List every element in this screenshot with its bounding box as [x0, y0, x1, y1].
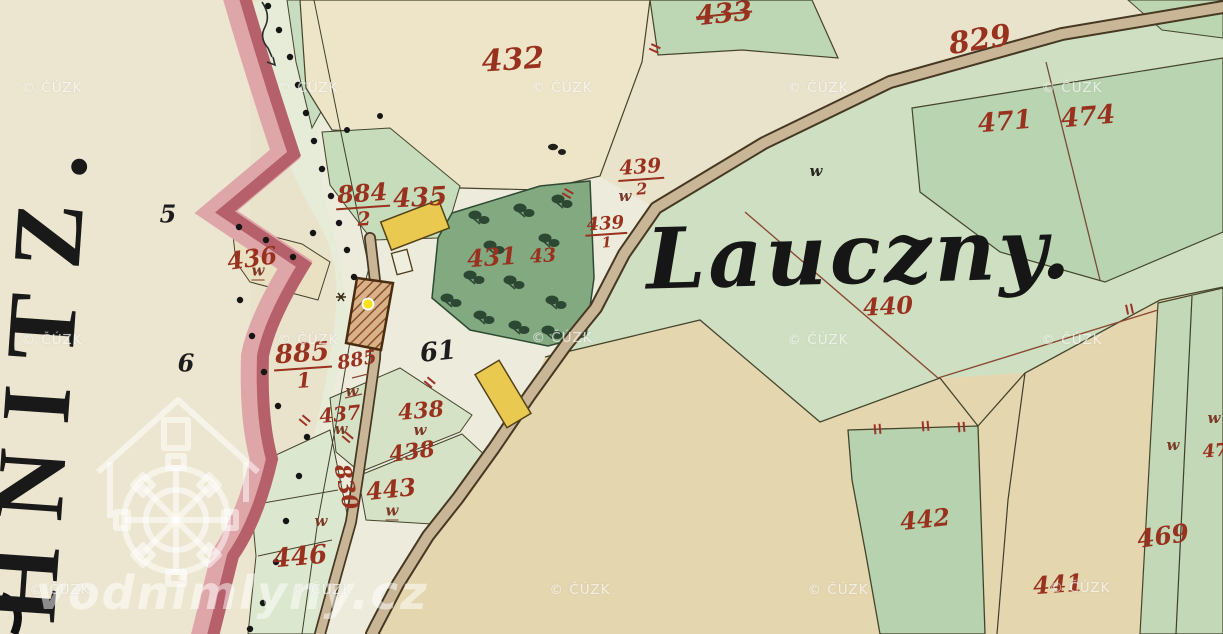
cuzk-watermark: © ČÚZK [22, 80, 83, 96]
cuzk-watermark: © ČÚZK [22, 332, 83, 348]
vodnimlyny-text-watermark: vodnimlyny.cz [36, 566, 429, 620]
cuzk-watermark: © ČÚZK [278, 80, 339, 96]
cuzk-watermark: © ČÚZK [1050, 580, 1111, 596]
cuzk-watermark: © ČÚZK [788, 80, 849, 96]
historic-cadastral-map-view: HNITZ. Lauczny. 432433829471474435436431… [0, 0, 1223, 634]
cuzk-watermark: © ČÚZK [788, 332, 849, 348]
cuzk-watermark: © ČÚZK [532, 80, 593, 96]
cuzk-watermark: © ČÚZK [532, 330, 593, 346]
cuzk-watermark: © ČÚZK [278, 332, 339, 348]
cuzk-watermark: © ČÚZK [1042, 80, 1103, 96]
cuzk-watermark: © ČÚZK [550, 582, 611, 598]
cuzk-watermark: © ČÚZK [808, 582, 869, 598]
watermark-layer: vodnimlyny.cz © ČÚZK© ČÚZK© ČÚZK© ČÚZK© … [0, 0, 1223, 634]
cuzk-watermark: © ČÚZK [30, 582, 91, 598]
cuzk-watermark: © ČÚZK [1042, 332, 1103, 348]
cuzk-watermark: © ČÚZK [292, 582, 353, 598]
